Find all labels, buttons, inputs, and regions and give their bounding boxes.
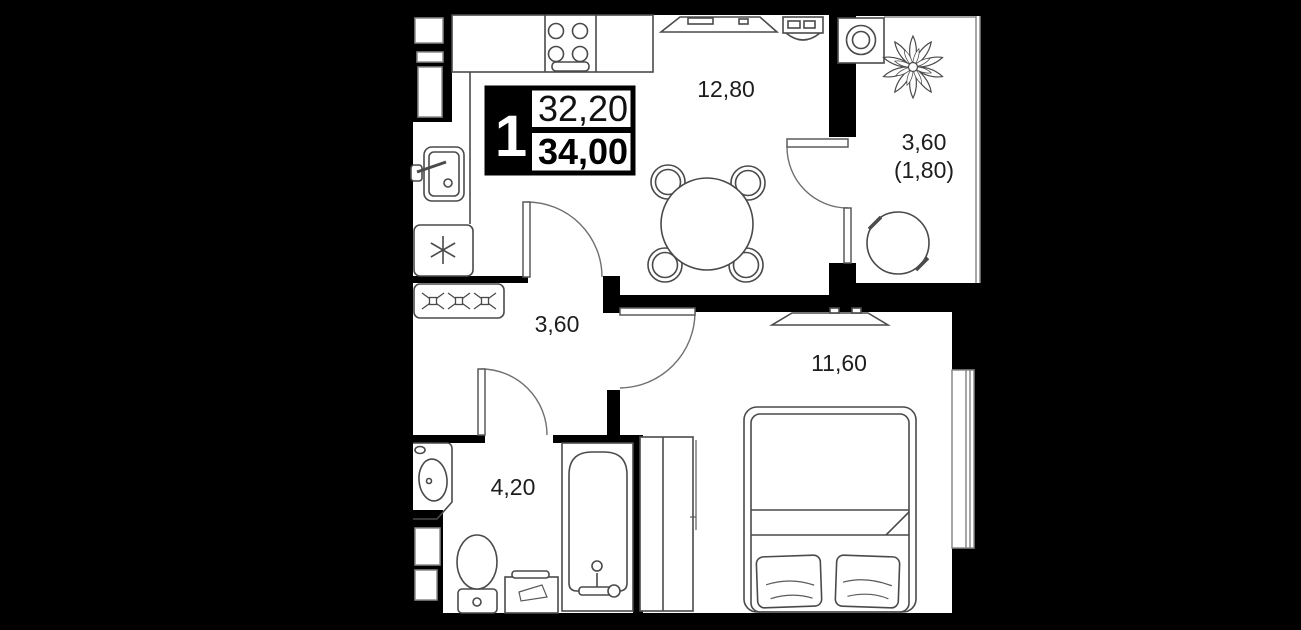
vent-shaft bbox=[415, 528, 440, 565]
vent-shaft bbox=[417, 52, 443, 62]
laundry-basket-icon bbox=[505, 571, 558, 613]
kitchen-door-opening bbox=[528, 276, 603, 283]
dining-table-icon bbox=[661, 178, 753, 270]
balcony-chair-icon bbox=[867, 212, 929, 274]
bathtub-icon bbox=[562, 443, 633, 611]
rooms-count: 1 bbox=[495, 104, 527, 169]
bedroom-door-opening bbox=[607, 313, 620, 390]
oven-handle bbox=[552, 62, 589, 71]
pillow-icon bbox=[756, 555, 822, 608]
balcony-coefficient-label: (1,80) bbox=[894, 157, 954, 183]
hallway-label: 3,60 bbox=[535, 311, 580, 337]
vent-shaft bbox=[418, 67, 442, 117]
floor-plan: 1 32,20 34,00 12,80 3,60 (1,80) 3,60 11,… bbox=[0, 0, 1301, 630]
closet-icon bbox=[414, 284, 504, 318]
kitchen-living-label: 12,80 bbox=[697, 76, 755, 102]
area-total: 34,00 bbox=[538, 131, 628, 172]
pillow-icon bbox=[835, 555, 900, 608]
door-leaf bbox=[523, 202, 530, 277]
balcony-door-opening bbox=[829, 137, 856, 263]
vent-shaft bbox=[415, 570, 437, 600]
bedroom-label: 11,60 bbox=[811, 350, 867, 376]
unit-card: 1 32,20 34,00 bbox=[487, 88, 633, 173]
balcony-area-label: 3,60 bbox=[902, 129, 947, 155]
area-living: 32,20 bbox=[538, 88, 628, 129]
bathroom-door-opening bbox=[485, 435, 553, 443]
vent-shaft bbox=[415, 18, 443, 43]
radiator-icon bbox=[661, 17, 777, 32]
bathroom-label: 4,20 bbox=[491, 474, 536, 500]
door-leaf bbox=[787, 139, 848, 147]
toilet-icon bbox=[457, 535, 497, 613]
wardrobe-icon bbox=[640, 437, 696, 611]
bedroom-window bbox=[952, 370, 974, 548]
bed-icon bbox=[744, 407, 916, 612]
door-side-panel bbox=[844, 208, 851, 263]
door-leaf bbox=[620, 308, 695, 315]
floor-plan-canvas: 1 32,20 34,00 12,80 3,60 (1,80) 3,60 11,… bbox=[0, 0, 1301, 630]
fridge-icon bbox=[414, 225, 473, 276]
washing-machine-icon bbox=[838, 18, 884, 63]
door-leaf bbox=[478, 369, 485, 435]
